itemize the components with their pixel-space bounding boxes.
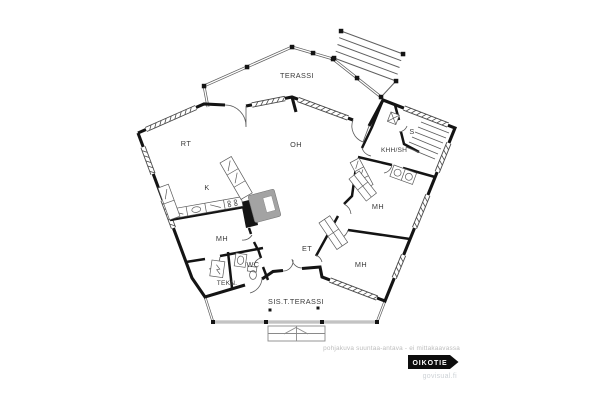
room-label-k: K: [204, 183, 209, 192]
room-label-terassi: TERASSI: [280, 71, 314, 80]
room-label-wc: WC: [247, 260, 260, 269]
terrace-posts: [202, 29, 405, 100]
interior-walls: [170, 100, 435, 288]
floor-plan: TERASSI RT OH S KHH/SH K MH WC TEKN. ET …: [0, 0, 600, 400]
room-label-oh: OH: [290, 140, 302, 149]
water-heater-icon: [210, 260, 225, 278]
watermark-text: govisual.fi: [423, 373, 458, 380]
entry-steps: [268, 326, 325, 341]
room-label-sis-terassi: SIS.T.TERASSI: [268, 297, 324, 306]
room-label-mh-left: MH: [216, 234, 228, 243]
room-label-et: ET: [302, 244, 312, 253]
room-label-s: S: [409, 127, 414, 136]
oikotie-logo-text: OIKOTIE: [412, 360, 447, 367]
room-label-rt: RT: [181, 139, 192, 148]
room-label-mh-upper: MH: [372, 202, 384, 211]
kitchen-cabinet-strip: [220, 157, 252, 200]
oikotie-logo: OIKOTIE: [408, 355, 459, 369]
room-label-mh-lower: MH: [355, 260, 367, 269]
room-label-tekn: TEKN.: [217, 280, 237, 287]
disclaimer-text: pohjakuva suuntaa-antava - ei mittakaava…: [323, 345, 460, 352]
room-label-khh-sh: KHH/SH: [381, 147, 407, 154]
floor-plan-page: TERASSI RT OH S KHH/SH K MH WC TEKN. ET …: [0, 0, 600, 400]
washbasin-icon: [234, 253, 247, 267]
exterior-walls: [138, 97, 455, 301]
